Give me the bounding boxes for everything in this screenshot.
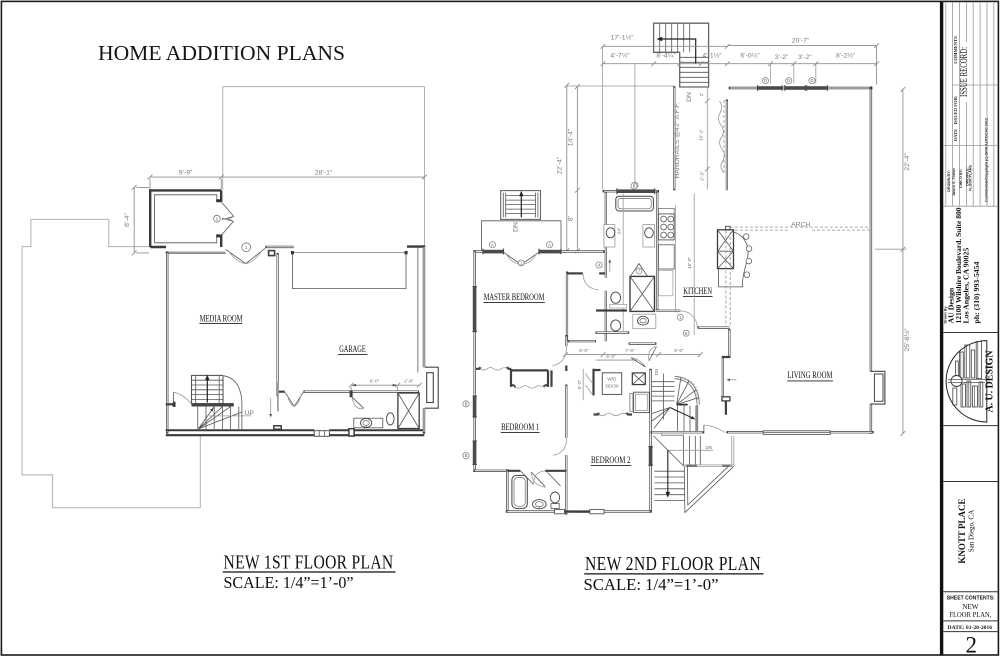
svg-text:FLOOR PLAN,: FLOOR PLAN,	[949, 611, 991, 619]
svg-text:7’-0”: 7’-0”	[625, 348, 635, 353]
svg-text:9’-0”: 9’-0”	[674, 348, 684, 353]
svg-text:B: B	[465, 402, 468, 407]
svg-text:28’-1”: 28’-1”	[315, 170, 333, 177]
svg-text:DATE: DATE	[953, 129, 958, 141]
svg-text:SCALE: 1/4”=1’-0”: SCALE: 1/4”=1’-0”	[584, 575, 719, 594]
svg-text:B: B	[633, 184, 636, 189]
svg-text:25’-8½”: 25’-8½”	[903, 328, 911, 352]
svg-text:NEW: NEW	[962, 603, 979, 611]
svg-text:ph: (310) 993-5454: ph: (310) 993-5454	[972, 261, 981, 323]
svg-text:COMMENTS: COMMENTS	[953, 36, 958, 64]
svg-text:20’-7”: 20’-7”	[792, 38, 810, 45]
svg-text:17’-1½”: 17’-1½”	[610, 34, 634, 42]
svg-text:5’-0”: 5’-0”	[577, 379, 582, 389]
svg-text:8’-2½”: 8’-2½”	[836, 52, 856, 60]
svg-text:3’-2”: 3’-2”	[775, 54, 789, 61]
svg-text:Jason S. Fisher: Jason S. Fisher	[952, 167, 956, 196]
svg-text:A: A	[491, 242, 494, 247]
svg-text:4’-1½”: 4’-1½”	[702, 52, 722, 60]
svg-text:San Diego, CA: San Diego, CA	[967, 510, 975, 553]
svg-text:6’-0½”: 6’-0½”	[740, 52, 760, 60]
svg-text:HANDRAILS @42” A.F.F.: HANDRAILS @42” A.F.F.	[674, 102, 681, 178]
svg-text:W/D: W/D	[607, 377, 617, 382]
svg-text:3’-2”: 3’-2”	[798, 54, 812, 61]
svg-text:14’-4”: 14’-4”	[567, 128, 574, 146]
svg-text:DN: DN	[654, 369, 659, 376]
svg-text:8’: 8’	[567, 215, 574, 221]
svg-text:CHK’D BY:: CHK’D BY:	[959, 169, 963, 188]
svg-text:10’-1”: 10’-1”	[699, 129, 704, 141]
svg-text:FLOOR PLANS: FLOOR PLANS	[969, 165, 973, 191]
svg-text:36X36: 36X36	[605, 384, 619, 389]
svg-text:DN: DN	[706, 445, 713, 450]
svg-text:6’-0”: 6’-0”	[370, 379, 380, 384]
svg-text:ISSUED FOR:: ISSUED FOR:	[953, 95, 958, 124]
svg-text:DATE: 01-20-2016: DATE: 01-20-2016	[948, 625, 993, 631]
svg-text:8’-4”: 8’-4”	[124, 212, 131, 226]
svg-text:8’-4¼”: 8’-4¼”	[656, 53, 676, 60]
svg-text:6’-0”: 6’-0”	[606, 354, 616, 359]
svg-text:22’-4”: 22’-4”	[904, 153, 911, 171]
svg-text:9’-9”: 9’-9”	[179, 170, 193, 177]
svg-text:D: D	[787, 78, 790, 83]
svg-text:SCALE: 1/4”=1’-0”: SCALE: 1/4”=1’-0”	[224, 573, 354, 592]
svg-text:NEW 2ND FLOOR PLAN: NEW 2ND FLOOR PLAN	[585, 554, 761, 575]
svg-text:8’-0”: 8’-0”	[579, 348, 589, 353]
svg-text:15’-0”: 15’-0”	[687, 257, 692, 269]
svg-text:A. U. DESIGN: A. U. DESIGN	[985, 350, 996, 412]
svg-text:24”: 24”	[616, 227, 621, 234]
svg-text:MASTER BEDROOM: MASTER BEDROOM	[484, 292, 545, 302]
svg-text:B: B	[465, 453, 468, 458]
svg-text:SHEET CONTENTS:: SHEET CONTENTS:	[947, 595, 995, 601]
svg-text:UP: UP	[245, 410, 255, 417]
svg-text:HOME ADDITION PLANS: HOME ADDITION PLANS	[98, 41, 345, 65]
svg-text:ARCH: ARCH	[791, 221, 810, 228]
svg-text:22’-4”: 22’-4”	[557, 156, 564, 174]
svg-text:DN: DN	[513, 222, 520, 232]
svg-text:ISSUE RECORD:: ISSUE RECORD:	[959, 47, 970, 97]
svg-text:2’: 2’	[699, 93, 704, 97]
svg-text:Confidential/Copyright (c) DPW: Confidential/Copyright (c) DPW AUTOCAD 2…	[985, 118, 989, 202]
svg-text:2’-3”: 2’-3”	[700, 171, 705, 181]
svg-text:4’-7½”: 4’-7½”	[610, 52, 630, 60]
svg-text:BEDROOM 1: BEDROOM 1	[501, 422, 539, 432]
svg-text:2: 2	[965, 632, 977, 657]
svg-text:KITCHEN: KITCHEN	[683, 286, 712, 296]
svg-text:D: D	[764, 78, 767, 83]
svg-text:2’-8”: 2’-8”	[404, 379, 414, 384]
svg-text:KNOTT PLACE: KNOTT PLACE	[957, 498, 967, 563]
svg-text:DN: DN	[686, 92, 693, 102]
svg-text:Los Angeles, CA 90025: Los Angeles, CA 90025	[962, 248, 971, 324]
svg-text:GARAGE: GARAGE	[339, 344, 366, 354]
svg-text:A: A	[548, 242, 551, 247]
svg-text:DRAWN BY:: DRAWN BY:	[947, 170, 951, 192]
svg-text:LIVING ROOM: LIVING ROOM	[787, 370, 832, 380]
svg-text:NEW 1ST FLOOR PLAN: NEW 1ST FLOOR PLAN	[224, 552, 394, 573]
svg-text:D: D	[810, 78, 813, 83]
svg-text:BEDROOM 2: BEDROOM 2	[591, 455, 631, 465]
svg-text:MEDIA ROOM: MEDIA ROOM	[200, 313, 243, 323]
